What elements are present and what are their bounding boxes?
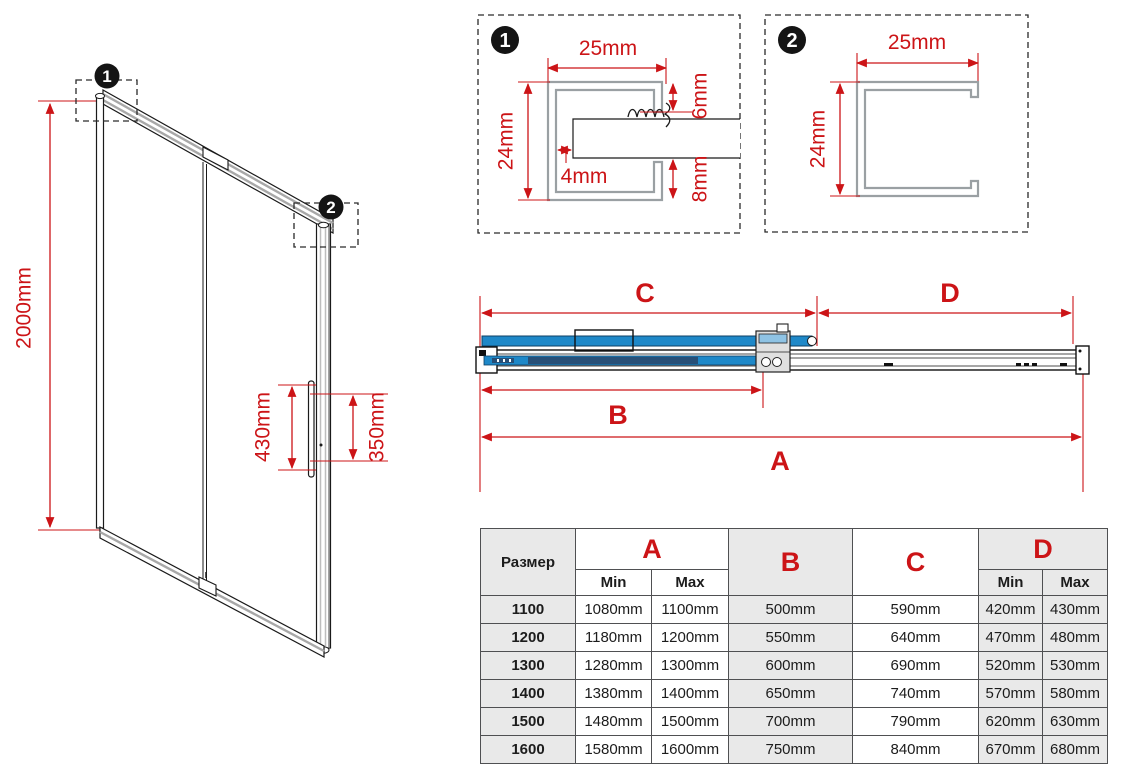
column-b-header: B — [729, 529, 853, 596]
left-wall-profile — [97, 95, 104, 528]
sliding-glass-dark-stripe — [528, 357, 698, 364]
c-cell: 590mm — [853, 596, 979, 624]
a-max-cell: 1300mm — [652, 652, 729, 680]
carriage-top-stop — [777, 324, 788, 332]
hardware-mark-1 — [497, 359, 499, 362]
a-min-cell: 1480mm — [576, 708, 652, 736]
hardware-mark-2 — [503, 359, 505, 362]
a-min-cell: 1380mm — [576, 680, 652, 708]
detail-2-number: 2 — [786, 30, 797, 52]
a-min-header: Min — [576, 570, 652, 596]
column-a-header: A — [576, 529, 729, 570]
c-label: C — [635, 278, 655, 308]
b-cell: 550mm — [729, 624, 853, 652]
rail-mark-5 — [1060, 363, 1067, 366]
square-cover-profile — [857, 82, 978, 196]
rail-end-cap — [1076, 346, 1089, 374]
rail-mark-2 — [1016, 363, 1021, 366]
a-max-cell: 1600mm — [652, 736, 729, 764]
table-row: 1600 1580mm 1600mm 750mm 840mm 670mm 680… — [481, 736, 1108, 764]
rail-mark-4 — [1032, 363, 1037, 366]
d-max-cell: 680mm — [1043, 736, 1108, 764]
table-row: 1300 1280mm 1300mm 600mm 690mm 520mm 530… — [481, 652, 1108, 680]
end-cap-screw-2 — [1079, 368, 1082, 371]
size-table: Размер A B C D Min Max Min Max 1100 1080… — [480, 528, 1108, 764]
d-min-cell: 670mm — [979, 736, 1043, 764]
d-min-cell: 420mm — [979, 596, 1043, 624]
detail-2-width-dimension: 25mm — [888, 31, 946, 54]
door-handle — [309, 381, 315, 477]
detail-1-height-dimension: 24mm — [495, 112, 518, 170]
c-cell: 690mm — [853, 652, 979, 680]
hardware-mark-3 — [509, 359, 511, 362]
rail-top-view: C D — [476, 278, 1089, 492]
a-min-cell: 1180mm — [576, 624, 652, 652]
d-max-cell: 480mm — [1043, 624, 1108, 652]
a-min-cell: 1280mm — [576, 652, 652, 680]
a-max-cell: 1200mm — [652, 624, 729, 652]
detail-2-height-dimension: 24mm — [807, 110, 830, 168]
d-min-cell: 620mm — [979, 708, 1043, 736]
d-label: D — [940, 278, 960, 308]
d-max-cell: 630mm — [1043, 708, 1108, 736]
c-cell: 840mm — [853, 736, 979, 764]
size-cell: 1300 — [481, 652, 576, 680]
callout-2-number: 2 — [326, 198, 335, 217]
table-row: 1100 1080mm 1100mm 500mm 590mm 420mm 430… — [481, 596, 1108, 624]
door-isometric-view: 2000mm 1 2 — [13, 64, 389, 658]
detail-1: 1 25mm 6mm 8mm 4mm 24mm — [478, 15, 740, 233]
d-min-cell: 520mm — [979, 652, 1043, 680]
door-stile-profile — [317, 224, 331, 648]
callout-1-number: 1 — [102, 67, 111, 86]
fixed-glass-end-cap — [808, 337, 817, 346]
a-min-cell: 1580mm — [576, 736, 652, 764]
size-cell: 1200 — [481, 624, 576, 652]
b-cell: 500mm — [729, 596, 853, 624]
column-d-header: D — [979, 529, 1108, 570]
detail-1-top-dimension: 6mm — [689, 73, 712, 120]
b-cell: 600mm — [729, 652, 853, 680]
stile-screw — [320, 444, 323, 447]
c-cell: 790mm — [853, 708, 979, 736]
size-cell: 1500 — [481, 708, 576, 736]
b-cell: 700mm — [729, 708, 853, 736]
handle-length-dimension: 430mm — [252, 392, 275, 462]
stile-top-cap — [319, 222, 329, 228]
d-min-header: Min — [979, 570, 1043, 596]
d-min-cell: 570mm — [979, 680, 1043, 708]
d-max-cell: 580mm — [1043, 680, 1108, 708]
column-c-header: C — [853, 529, 979, 596]
size-column-header: Размер — [481, 529, 576, 596]
a-max-cell: 1500mm — [652, 708, 729, 736]
d-max-cell: 430mm — [1043, 596, 1108, 624]
c-cell: 640mm — [853, 624, 979, 652]
detail-2: 2 25mm 24mm — [765, 15, 1028, 232]
shower-door-technical-diagram: 2000mm 1 2 — [0, 0, 1125, 776]
glass-panel-section-fill — [573, 119, 740, 158]
b-cell: 750mm — [729, 736, 853, 764]
detail-1-number: 1 — [499, 30, 510, 52]
size-cell: 1100 — [481, 596, 576, 624]
carriage-glass-window — [759, 334, 787, 343]
a-min-cell: 1080mm — [576, 596, 652, 624]
handle-holes-dimension: 350mm — [366, 392, 389, 462]
roller-wheel-2 — [773, 358, 782, 367]
rail-mark-3 — [1024, 363, 1029, 366]
d-max-cell: 530mm — [1043, 652, 1108, 680]
left-post-cap — [96, 93, 105, 98]
table-row: 1400 1380mm 1400mm 650mm 740mm 570mm 580… — [481, 680, 1108, 708]
b-label: B — [608, 400, 628, 430]
a-max-header: Max — [652, 570, 729, 596]
a-max-cell: 1100mm — [652, 596, 729, 624]
wall-bracket-notch — [479, 350, 486, 356]
detail-1-gap-dimension: 4mm — [561, 165, 608, 188]
table-row: 1200 1180mm 1200mm 550mm 640mm 470mm 480… — [481, 624, 1108, 652]
door-height-dimension: 2000mm — [13, 267, 36, 349]
rail-mark-1 — [884, 363, 893, 366]
d-max-header: Max — [1043, 570, 1108, 596]
detail-1-width-dimension: 25mm — [579, 37, 637, 60]
end-cap-screw-1 — [1079, 350, 1082, 353]
roller-wheel-1 — [762, 358, 771, 367]
b-cell: 650mm — [729, 680, 853, 708]
a-max-cell: 1400mm — [652, 680, 729, 708]
detail-1-bottom-dimension: 8mm — [689, 156, 712, 203]
size-cell: 1600 — [481, 736, 576, 764]
d-min-cell: 470mm — [979, 624, 1043, 652]
size-cell: 1400 — [481, 680, 576, 708]
a-label: A — [770, 446, 790, 476]
c-cell: 740mm — [853, 680, 979, 708]
table-row: 1500 1480mm 1500mm 700mm 790mm 620mm 630… — [481, 708, 1108, 736]
